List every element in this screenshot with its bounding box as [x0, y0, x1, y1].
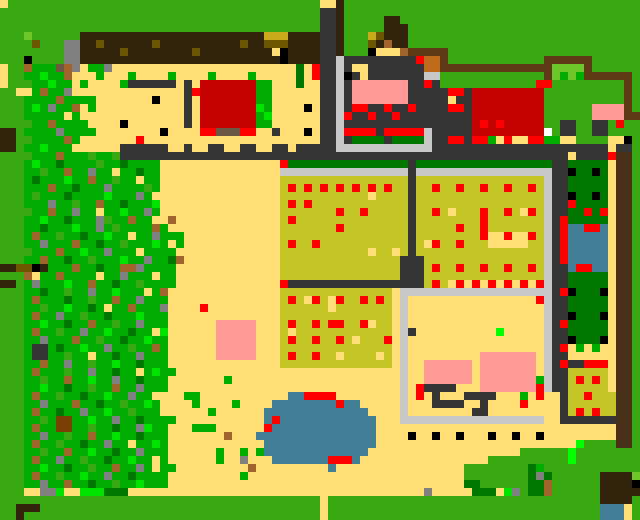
- farm-map-canvas: [0, 0, 640, 520]
- farm-map-screen: [0, 0, 640, 520]
